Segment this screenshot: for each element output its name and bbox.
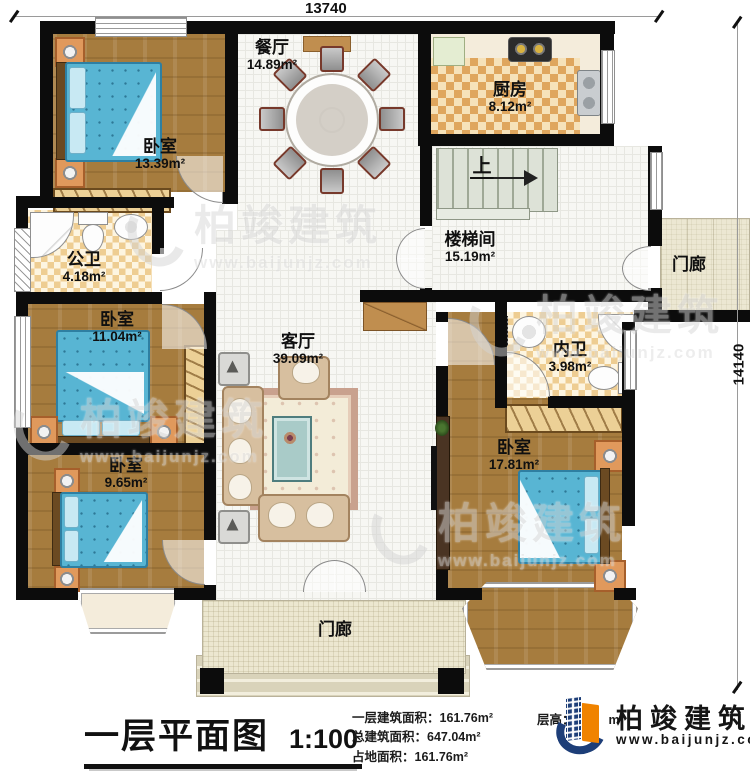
sofa-pillow bbox=[228, 438, 252, 464]
pillow bbox=[584, 476, 599, 512]
wall bbox=[448, 588, 482, 600]
dining-table-center bbox=[319, 107, 345, 133]
room-name: 楼梯间 bbox=[445, 230, 496, 249]
room-name: 卧室 bbox=[135, 137, 185, 156]
room-label-bath-ensuite: 内卫 3.98m² bbox=[549, 340, 592, 374]
room-name: 餐厅 bbox=[247, 38, 297, 57]
bay-window-bot-right bbox=[462, 582, 638, 670]
window bbox=[95, 17, 187, 37]
logo-building-orange bbox=[582, 703, 599, 743]
title-block: 一层平面图 1:100 一层建筑面积：161.76m² 总建筑面积：647.04… bbox=[0, 702, 750, 771]
room-area: 13.39m² bbox=[135, 156, 185, 171]
pillow bbox=[62, 420, 100, 436]
window bbox=[601, 50, 615, 124]
cutting-board bbox=[433, 37, 465, 66]
window bbox=[14, 316, 31, 428]
bed-blanket bbox=[100, 494, 142, 562]
console-table bbox=[363, 302, 427, 331]
floor-plan-page: 卧室 13.39m² 餐厅 14.89m² 厨房 8.12m² 楼梯间 15.1… bbox=[0, 0, 750, 771]
wall bbox=[225, 21, 238, 203]
nightstand bbox=[54, 468, 80, 494]
wall bbox=[222, 192, 238, 204]
room-name: 客厅 bbox=[273, 332, 323, 351]
logo-swoosh-shape bbox=[550, 701, 613, 761]
wall bbox=[622, 408, 635, 526]
room-label-porch-bottom: 门廊 bbox=[318, 620, 352, 639]
pillow bbox=[584, 518, 599, 554]
window bbox=[624, 330, 637, 390]
stat-line-footprint-area: 占地面积：161.76m² bbox=[352, 748, 493, 767]
room-name: 厨房 bbox=[489, 80, 532, 99]
wall bbox=[16, 588, 78, 600]
stairs-up-label: 上 bbox=[470, 156, 493, 179]
wall bbox=[28, 197, 174, 208]
room-area: 4.18m² bbox=[63, 269, 106, 284]
pillow bbox=[102, 420, 140, 436]
dimension-tick bbox=[732, 681, 742, 694]
plan-scale: 1:100 bbox=[289, 724, 358, 755]
room-label-bedroom-mid-left: 卧室 11.04m² bbox=[92, 310, 142, 344]
louver-window bbox=[14, 228, 31, 292]
sofa-pillow bbox=[268, 502, 296, 528]
room-area: 15.19m² bbox=[445, 249, 496, 264]
coffee-table bbox=[272, 416, 312, 482]
room-label-stairwell: 楼梯间 15.19m² bbox=[445, 230, 496, 264]
room-label-bath-public: 公卫 4.18m² bbox=[63, 250, 106, 284]
dimension-right-value: 14140 bbox=[730, 344, 747, 386]
wall bbox=[16, 443, 216, 455]
table-decor bbox=[282, 430, 298, 446]
brand-url: www.baijunjz.com bbox=[616, 733, 750, 747]
door-bath-public bbox=[160, 248, 203, 291]
room-area: 9.65m² bbox=[105, 475, 148, 490]
sofa-pillow bbox=[228, 398, 252, 424]
room-area: 3.98m² bbox=[549, 359, 592, 374]
wall bbox=[495, 302, 507, 408]
area-statistics: 一层建筑面积：161.76m² 总建筑面积：647.04m² 占地面积：161.… bbox=[352, 709, 493, 767]
room-label-living: 客厅 39.09m² bbox=[273, 332, 323, 366]
bed-blanket bbox=[58, 372, 144, 418]
wall bbox=[634, 310, 750, 322]
window bbox=[650, 152, 663, 210]
wall bbox=[204, 455, 216, 540]
dining-chair bbox=[320, 46, 344, 72]
wall bbox=[418, 134, 614, 146]
wall bbox=[420, 290, 660, 302]
room-name: 卧室 bbox=[105, 456, 148, 475]
pillow bbox=[69, 112, 86, 154]
sofa-pillow bbox=[228, 474, 252, 500]
room-area: 8.12m² bbox=[489, 99, 532, 114]
stat-line-total-area: 总建筑面积：647.04m² bbox=[352, 728, 493, 747]
kitchen-sink bbox=[577, 70, 601, 116]
staircase bbox=[436, 148, 558, 212]
wall bbox=[418, 21, 431, 146]
room-label-porch-right: 门廊 bbox=[672, 255, 706, 274]
room-label-bedroom-bot-left: 卧室 9.65m² bbox=[105, 456, 148, 490]
wall bbox=[204, 292, 216, 455]
brand-name: 柏竣建筑 bbox=[616, 705, 750, 733]
porch-column bbox=[438, 668, 464, 694]
room-area: 17.81m² bbox=[489, 457, 539, 472]
room-area: 11.04m² bbox=[92, 329, 142, 344]
wall bbox=[495, 396, 505, 408]
wall bbox=[614, 588, 636, 600]
sink bbox=[114, 214, 148, 240]
room-label-dining: 餐厅 14.89m² bbox=[247, 38, 297, 72]
bed-headboard bbox=[600, 468, 610, 564]
room-name: 公卫 bbox=[63, 250, 106, 269]
toilet-bowl bbox=[588, 366, 620, 390]
room-name: 内卫 bbox=[549, 340, 592, 359]
plan-title-row: 一层平面图 1:100 bbox=[84, 708, 362, 769]
room-name: 卧室 bbox=[489, 438, 539, 457]
brand-text: 柏竣建筑 www.baijunjz.com bbox=[616, 705, 750, 748]
dimension-top-value: 13740 bbox=[305, 0, 347, 17]
wall bbox=[548, 396, 635, 408]
wall bbox=[420, 146, 432, 226]
sink bbox=[512, 316, 546, 348]
sofa-pillow bbox=[306, 502, 334, 528]
floor-plan-drawing: 卧室 13.39m² 餐厅 14.89m² 厨房 8.12m² 楼梯间 15.1… bbox=[0, 0, 750, 700]
room-area: 14.89m² bbox=[247, 57, 297, 72]
pillow bbox=[69, 67, 86, 109]
dining-chair bbox=[379, 107, 405, 131]
wall bbox=[40, 21, 53, 201]
bed-blanket bbox=[520, 472, 564, 558]
room-label-bedroom-bot-right: 卧室 17.81m² bbox=[489, 438, 539, 472]
plan-title: 一层平面图 bbox=[84, 708, 269, 759]
stat-line-floor-area: 一层建筑面积：161.76m² bbox=[352, 709, 493, 728]
dining-chair bbox=[320, 168, 344, 194]
stair-arrow-head bbox=[524, 170, 538, 186]
room-name: 卧室 bbox=[92, 310, 142, 329]
nightstand bbox=[55, 158, 85, 188]
room-area: 39.09m² bbox=[273, 351, 323, 366]
wall bbox=[436, 312, 448, 322]
brand-logo-icon bbox=[556, 696, 608, 756]
bay-window-bot-left bbox=[76, 588, 180, 634]
wardrobe bbox=[505, 404, 623, 433]
tv-cabinet bbox=[436, 416, 450, 570]
room-label-bedroom-top-left: 卧室 13.39m² bbox=[135, 137, 185, 171]
stairs-up-text: 上 bbox=[470, 156, 493, 179]
cooktop bbox=[508, 37, 552, 62]
wall bbox=[174, 588, 206, 600]
stair-landing bbox=[436, 208, 530, 220]
room-name: 门廊 bbox=[318, 620, 352, 639]
tv-screen bbox=[431, 446, 437, 510]
pillow bbox=[64, 530, 79, 562]
dining-chair bbox=[259, 107, 285, 131]
brand-logo: 柏竣建筑 www.baijunjz.com bbox=[556, 696, 750, 756]
pillow bbox=[64, 496, 79, 528]
porch-column bbox=[200, 668, 224, 694]
room-name: 门廊 bbox=[672, 255, 706, 274]
room-label-kitchen: 厨房 8.12m² bbox=[489, 80, 532, 114]
logo-building-navy bbox=[566, 697, 581, 741]
potted-plant bbox=[435, 420, 449, 436]
wall bbox=[16, 292, 162, 304]
